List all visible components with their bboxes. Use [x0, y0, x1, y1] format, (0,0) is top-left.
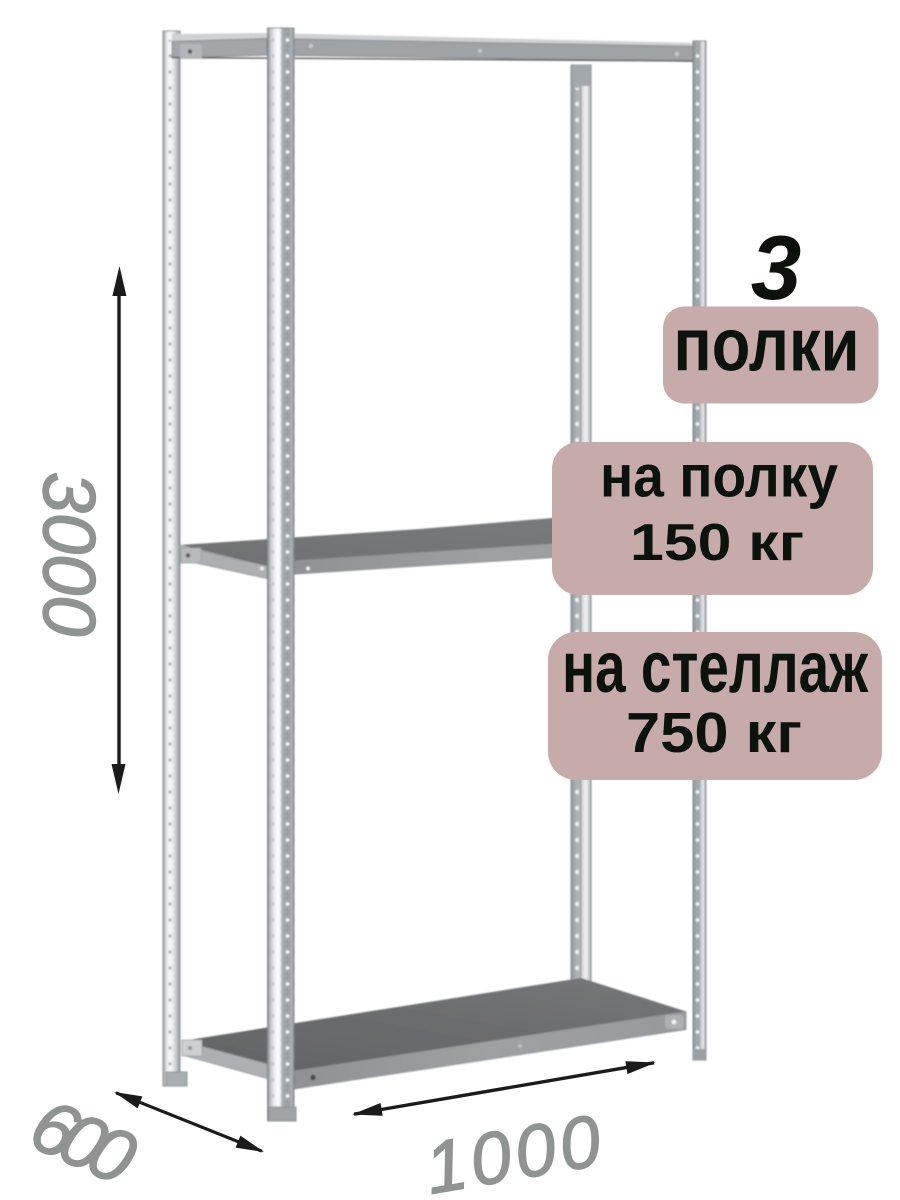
svg-text:150 кг: 150 кг	[630, 514, 804, 572]
svg-text:на полку: на полку	[600, 444, 838, 510]
svg-text:на стеллаж: на стеллаж	[562, 628, 869, 708]
svg-text:750 кг: 750 кг	[626, 701, 802, 765]
svg-text:полки: полки	[674, 303, 860, 387]
svg-text:3000: 3000	[28, 472, 111, 637]
